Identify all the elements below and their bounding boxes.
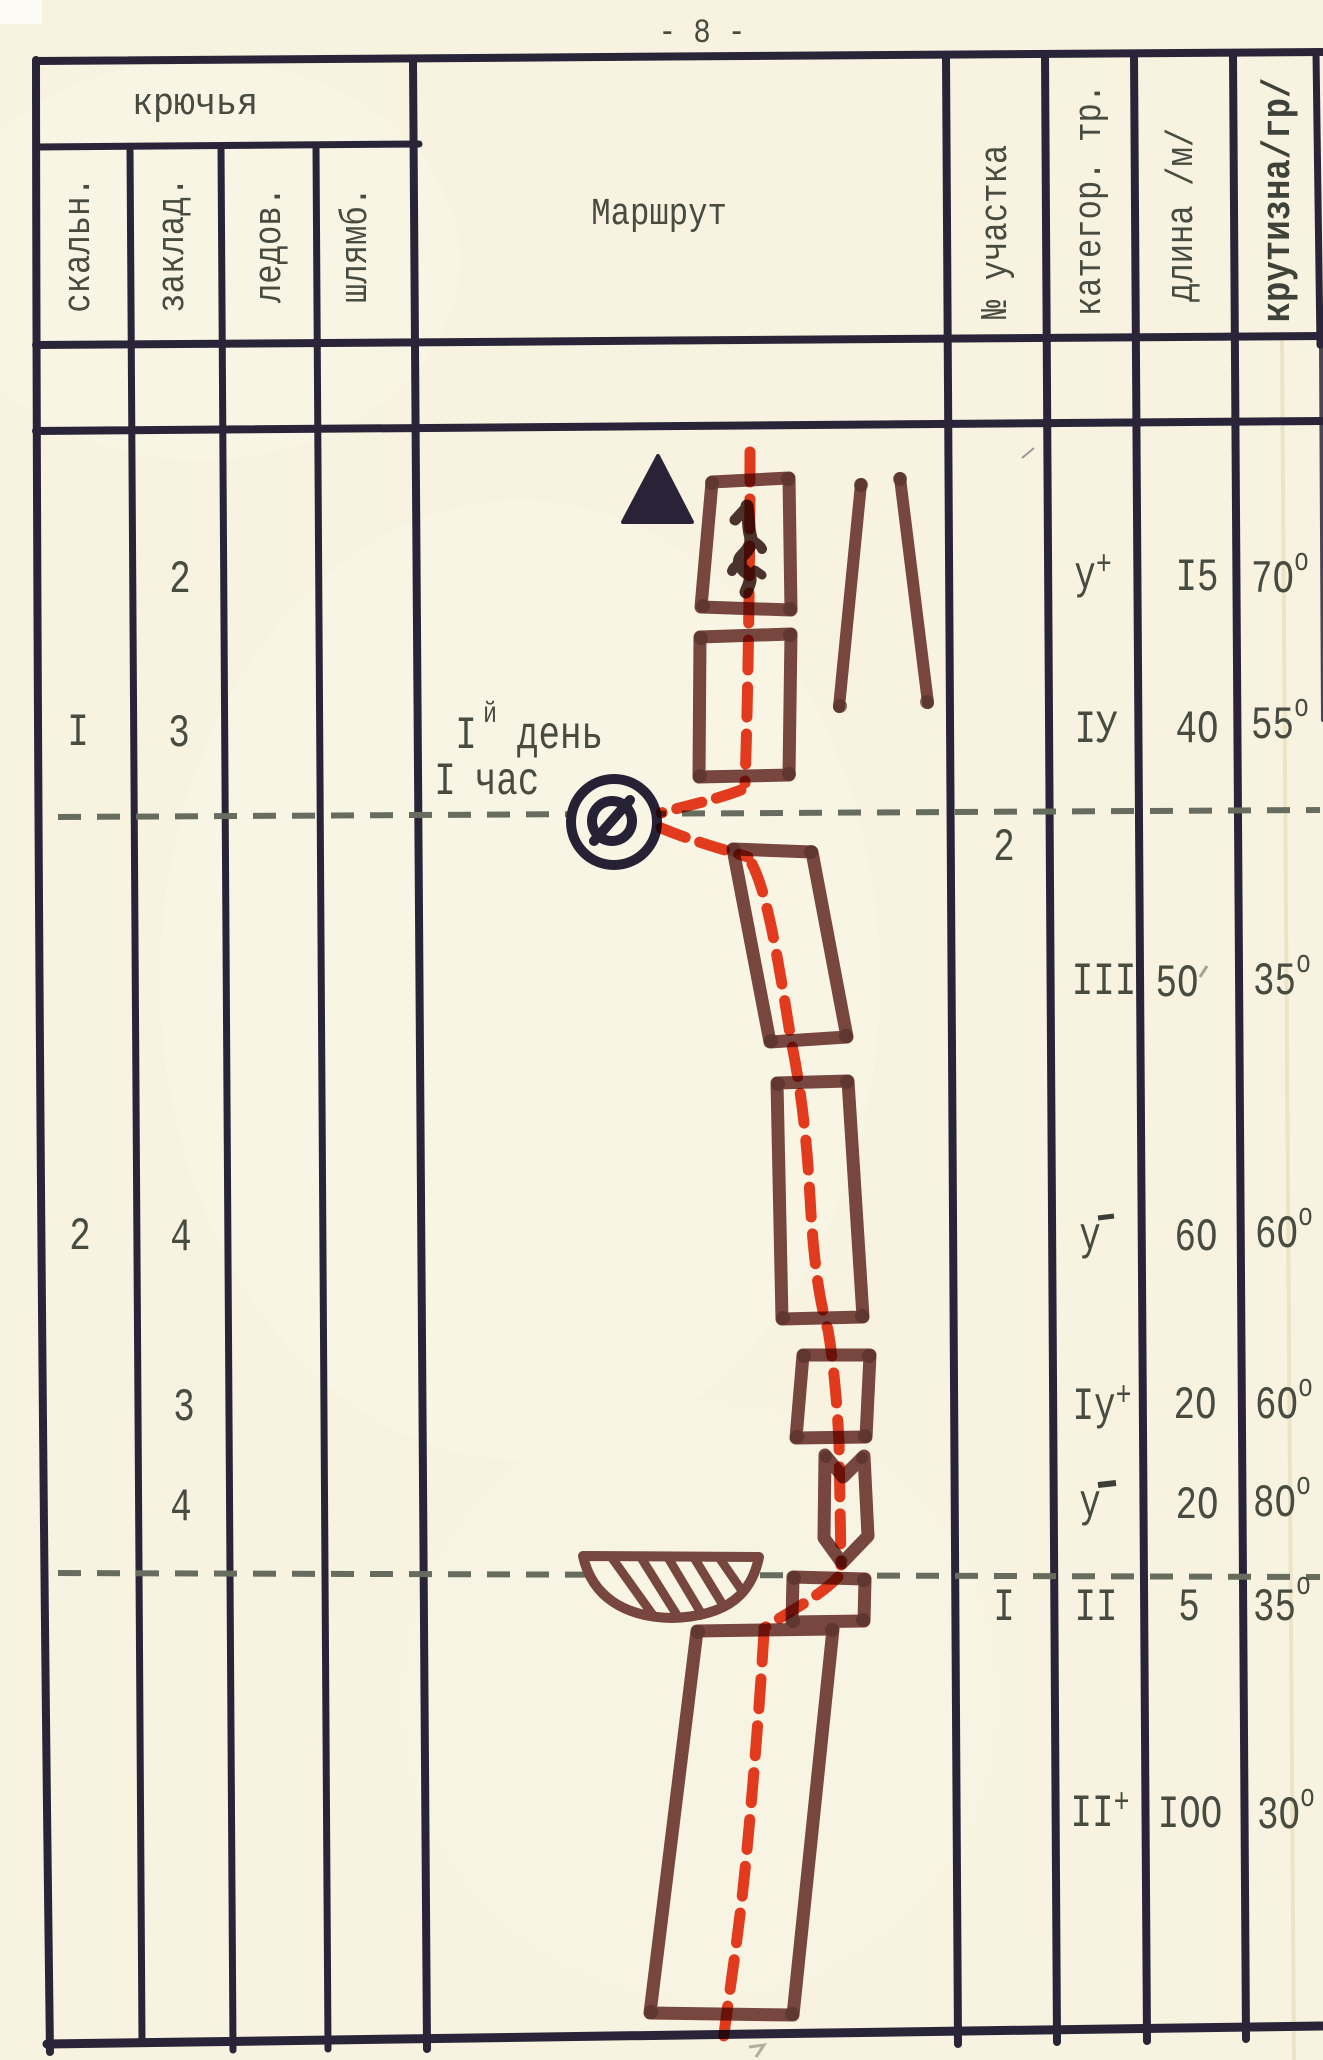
svg-text:5O: 5O bbox=[1155, 959, 1198, 1010]
svg-text:6O: 6O bbox=[1174, 1213, 1217, 1264]
svg-text:I: I bbox=[434, 757, 456, 808]
svg-text:у: у bbox=[1079, 1212, 1101, 1263]
svg-text:крючья: крючья bbox=[132, 83, 258, 126]
svg-text:IOO: IOO bbox=[1158, 1790, 1223, 1841]
svg-text:ледов.: ледов. bbox=[249, 187, 292, 303]
svg-text:шлямб.: шлямб. bbox=[335, 187, 378, 303]
svg-text:2: 2 bbox=[69, 1212, 91, 1263]
svg-text:заклад.: заклад. bbox=[152, 177, 195, 313]
svg-text:I5: I5 bbox=[1175, 553, 1218, 604]
svg-text:час: час bbox=[475, 757, 540, 808]
svg-text:№ участка: № участка bbox=[975, 145, 1018, 319]
svg-text:у: у bbox=[1079, 1479, 1101, 1530]
svg-text:IУ: IУ bbox=[1074, 705, 1117, 756]
svg-text:3: 3 bbox=[173, 1383, 195, 1434]
svg-text:крутизна/гр/: крутизна/гр/ bbox=[1257, 78, 1302, 323]
svg-text:4: 4 bbox=[170, 1483, 192, 1534]
svg-text:2: 2 bbox=[993, 823, 1015, 874]
svg-text:скальн.: скальн. bbox=[58, 177, 101, 313]
svg-text:4: 4 bbox=[170, 1213, 192, 1264]
svg-text:длина /м/: длина /м/ bbox=[1161, 128, 1204, 302]
svg-text:III: III bbox=[1072, 957, 1137, 1008]
svg-text:й: й bbox=[483, 699, 497, 732]
svg-text:3: 3 bbox=[168, 709, 190, 760]
svg-text:2O: 2O bbox=[1173, 1381, 1216, 1432]
svg-text:категор. тр.: категор. тр. bbox=[1069, 84, 1112, 316]
svg-text:I: I bbox=[67, 708, 89, 759]
svg-text:Маршрут: Маршрут bbox=[591, 193, 727, 236]
svg-text:I: I bbox=[993, 1583, 1015, 1634]
svg-text:2: 2 bbox=[169, 555, 191, 606]
svg-text:4O: 4O bbox=[1175, 705, 1218, 756]
svg-text:день: день bbox=[517, 711, 603, 762]
svg-text:- 8 -: - 8 - bbox=[659, 15, 746, 53]
svg-text:2O: 2O bbox=[1175, 1481, 1218, 1532]
svg-text:5: 5 bbox=[1178, 1583, 1200, 1634]
svg-text:I: I bbox=[455, 711, 477, 762]
svg-text:II: II bbox=[1074, 1583, 1117, 1634]
